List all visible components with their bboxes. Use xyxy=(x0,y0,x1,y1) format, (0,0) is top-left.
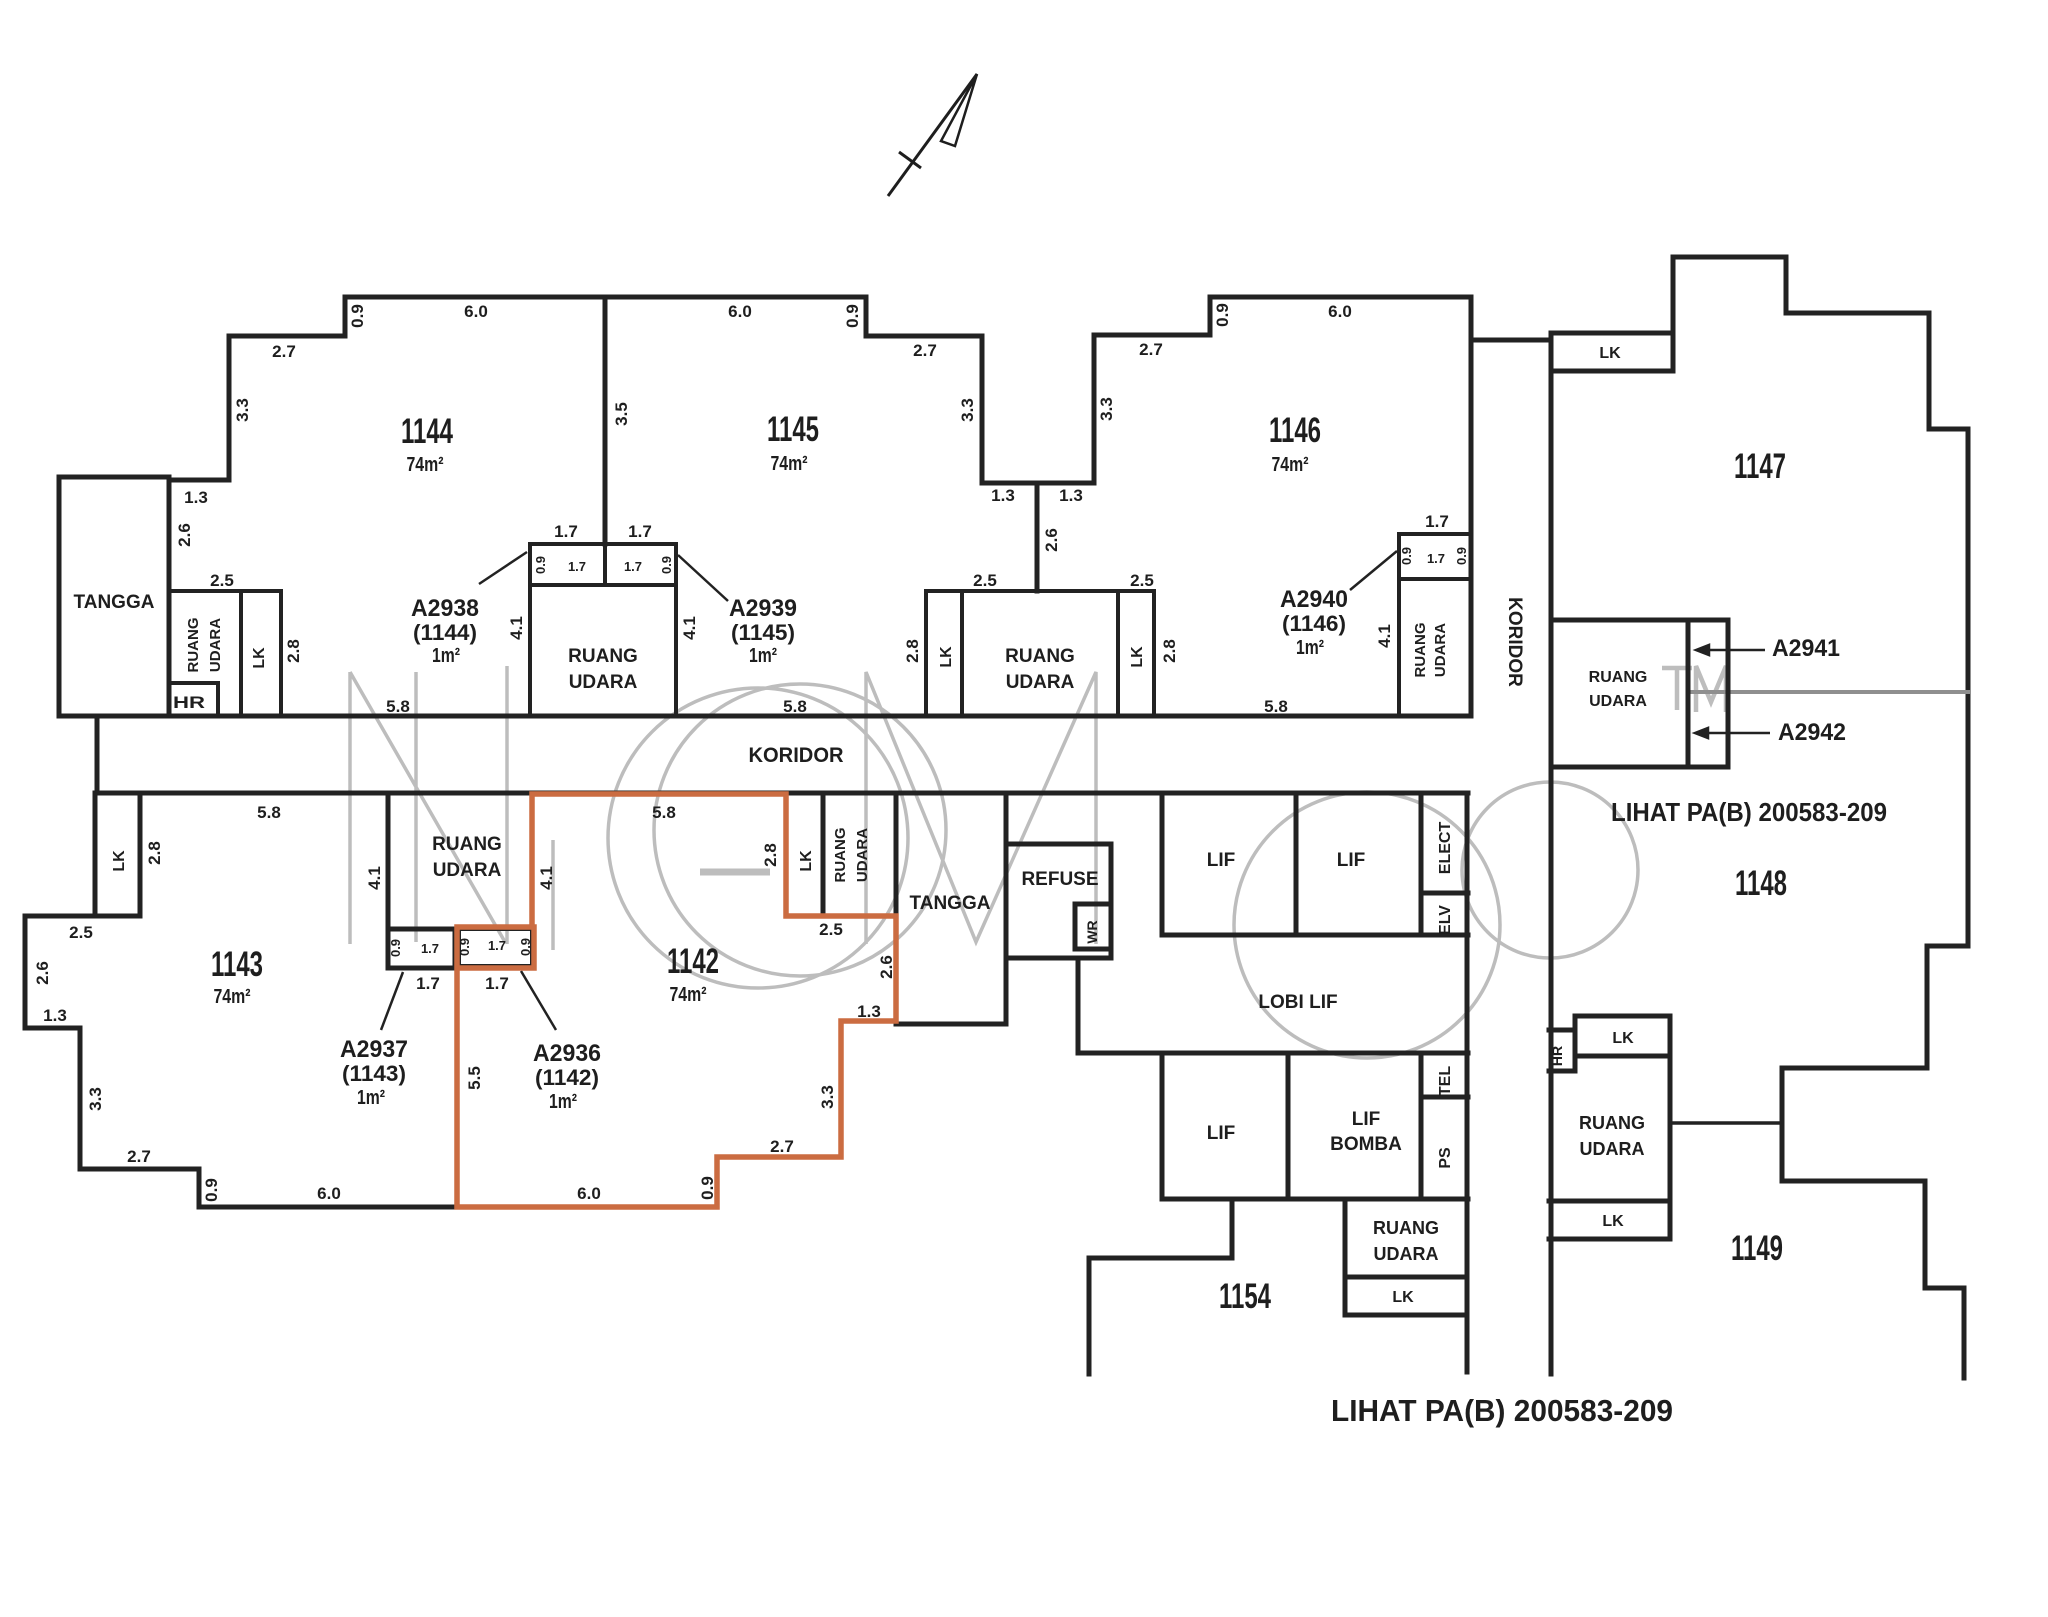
svg-text:74m²: 74m² xyxy=(1272,454,1309,476)
svg-text:LK: LK xyxy=(1612,1030,1634,1047)
svg-text:LIHAT PA(B) 200583-209: LIHAT PA(B) 200583-209 xyxy=(1331,1393,1673,1428)
svg-text:6.0: 6.0 xyxy=(728,302,752,321)
svg-text:3.3: 3.3 xyxy=(233,398,252,422)
svg-text:5.8: 5.8 xyxy=(386,697,410,716)
svg-text:RUANG: RUANG xyxy=(832,828,849,883)
svg-text:2.5: 2.5 xyxy=(973,571,997,590)
svg-text:0.9: 0.9 xyxy=(518,938,533,956)
svg-text:LK: LK xyxy=(1602,1213,1624,1230)
svg-text:TEL: TEL xyxy=(1437,1066,1454,1096)
svg-text:(1143): (1143) xyxy=(342,1061,406,1086)
svg-text:1.3: 1.3 xyxy=(857,1002,881,1021)
svg-text:UDARA: UDARA xyxy=(569,672,638,693)
svg-text:1144: 1144 xyxy=(401,412,453,451)
svg-text:5.5: 5.5 xyxy=(465,1066,484,1090)
svg-text:LOBI LIF: LOBI LIF xyxy=(1258,992,1337,1013)
svg-text:0.9: 0.9 xyxy=(659,556,674,574)
svg-text:UDARA: UDARA xyxy=(1580,1139,1645,1159)
svg-text:2.6: 2.6 xyxy=(1042,528,1061,552)
svg-text:4.1: 4.1 xyxy=(1375,624,1394,648)
svg-text:HR: HR xyxy=(1549,1046,1565,1066)
svg-text:1.7: 1.7 xyxy=(416,974,440,993)
svg-text:1.7: 1.7 xyxy=(554,522,578,541)
svg-text:LK: LK xyxy=(938,646,955,668)
svg-text:(1146): (1146) xyxy=(1282,611,1346,636)
svg-text:UDARA: UDARA xyxy=(1589,693,1647,710)
svg-text:5.8: 5.8 xyxy=(652,803,676,822)
svg-text:A2938: A2938 xyxy=(411,595,479,622)
svg-text:1.7: 1.7 xyxy=(488,938,506,953)
svg-text:1m²: 1m² xyxy=(1296,637,1324,659)
svg-text:6.0: 6.0 xyxy=(464,302,488,321)
svg-text:0.9: 0.9 xyxy=(698,1176,717,1200)
svg-text:RUANG: RUANG xyxy=(1589,669,1648,686)
svg-text:3.5: 3.5 xyxy=(612,402,631,426)
svg-text:1m²: 1m² xyxy=(357,1087,385,1109)
svg-text:1.3: 1.3 xyxy=(184,488,208,507)
svg-text:1147: 1147 xyxy=(1734,447,1786,486)
svg-text:5.8: 5.8 xyxy=(257,803,281,822)
svg-text:A2941: A2941 xyxy=(1772,635,1840,662)
svg-text:74m²: 74m² xyxy=(670,984,707,1006)
svg-text:A2940: A2940 xyxy=(1280,586,1348,613)
svg-text:2.7: 2.7 xyxy=(1139,340,1163,359)
svg-text:(1142): (1142) xyxy=(535,1065,599,1090)
svg-text:1m²: 1m² xyxy=(432,645,460,667)
svg-text:LK: LK xyxy=(1599,345,1621,362)
svg-text:0.9: 0.9 xyxy=(202,1178,221,1202)
svg-text:3.3: 3.3 xyxy=(818,1085,837,1109)
svg-text:LK: LK xyxy=(1129,646,1146,668)
svg-text:1148: 1148 xyxy=(1735,864,1787,903)
svg-text:0.9: 0.9 xyxy=(457,938,472,956)
svg-text:3.3: 3.3 xyxy=(958,398,977,422)
svg-text:4.1: 4.1 xyxy=(537,866,556,890)
svg-text:UDARA: UDARA xyxy=(433,860,502,881)
svg-text:5.8: 5.8 xyxy=(783,697,807,716)
svg-text:2.5: 2.5 xyxy=(819,920,843,939)
svg-text:1149: 1149 xyxy=(1731,1229,1783,1268)
svg-text:RUANG: RUANG xyxy=(185,618,202,673)
svg-text:(1145): (1145) xyxy=(731,620,795,645)
svg-text:A2936: A2936 xyxy=(533,1040,601,1067)
svg-text:1143: 1143 xyxy=(211,945,263,984)
svg-text:BOMBA: BOMBA xyxy=(1330,1134,1402,1155)
svg-text:RUANG: RUANG xyxy=(568,646,638,667)
svg-text:1.7: 1.7 xyxy=(628,522,652,541)
svg-text:1.7: 1.7 xyxy=(1425,512,1449,531)
svg-text:1.3: 1.3 xyxy=(991,486,1015,505)
svg-text:1m²: 1m² xyxy=(749,645,777,667)
svg-text:LIF: LIF xyxy=(1207,850,1236,871)
svg-text:2.8: 2.8 xyxy=(903,639,922,663)
svg-text:4.1: 4.1 xyxy=(365,866,384,890)
svg-text:UDARA: UDARA xyxy=(854,828,871,882)
svg-text:74m²: 74m² xyxy=(771,453,808,475)
svg-text:A2942: A2942 xyxy=(1778,719,1846,746)
svg-text:1m²: 1m² xyxy=(549,1091,577,1113)
svg-text:0.9: 0.9 xyxy=(1399,547,1414,565)
svg-text:1.3: 1.3 xyxy=(1059,486,1083,505)
svg-text:RUANG: RUANG xyxy=(1373,1218,1439,1238)
svg-text:4.1: 4.1 xyxy=(680,616,699,640)
svg-text:1142: 1142 xyxy=(667,942,719,981)
svg-text:UDARA: UDARA xyxy=(1006,672,1075,693)
svg-text:6.0: 6.0 xyxy=(317,1184,341,1203)
svg-text:LK: LK xyxy=(111,850,128,872)
svg-text:TANGGA: TANGGA xyxy=(910,893,991,914)
svg-text:TANGGA: TANGGA xyxy=(74,592,155,613)
svg-text:2.8: 2.8 xyxy=(1160,639,1179,663)
svg-text:REFUSE: REFUSE xyxy=(1021,869,1098,890)
svg-text:LK: LK xyxy=(798,850,815,872)
svg-text:2.5: 2.5 xyxy=(210,571,234,590)
svg-text:KORIDOR: KORIDOR xyxy=(1504,597,1525,687)
svg-text:RUANG: RUANG xyxy=(1005,646,1075,667)
svg-text:5.8: 5.8 xyxy=(1264,697,1288,716)
svg-text:LIF: LIF xyxy=(1352,1109,1381,1130)
svg-text:0.9: 0.9 xyxy=(388,939,403,957)
svg-text:RUANG: RUANG xyxy=(1412,623,1429,678)
svg-text:LIHAT PA(B) 200583-209: LIHAT PA(B) 200583-209 xyxy=(1611,797,1887,827)
svg-text:1.7: 1.7 xyxy=(485,974,509,993)
svg-text:2.5: 2.5 xyxy=(1130,571,1154,590)
svg-text:1.7: 1.7 xyxy=(421,941,439,956)
svg-text:1.7: 1.7 xyxy=(1427,551,1445,566)
svg-text:0.9: 0.9 xyxy=(533,556,548,574)
svg-text:LK: LK xyxy=(1392,1289,1414,1306)
svg-text:UDARA: UDARA xyxy=(1374,1244,1439,1264)
svg-text:(1144): (1144) xyxy=(413,620,477,645)
svg-text:UDARA: UDARA xyxy=(1432,623,1449,677)
svg-text:3.3: 3.3 xyxy=(1097,397,1116,421)
svg-text:UDARA: UDARA xyxy=(207,618,224,672)
svg-text:HR: HR xyxy=(173,693,205,712)
svg-text:ELECT: ELECT xyxy=(1437,822,1454,875)
svg-text:1.7: 1.7 xyxy=(568,559,586,574)
svg-text:2.7: 2.7 xyxy=(913,341,937,360)
svg-text:2.8: 2.8 xyxy=(145,841,164,865)
svg-text:4.1: 4.1 xyxy=(507,616,526,640)
svg-text:1.7: 1.7 xyxy=(624,559,642,574)
svg-text:1146: 1146 xyxy=(1269,411,1321,450)
svg-text:1.3: 1.3 xyxy=(43,1006,67,1025)
svg-text:74m²: 74m² xyxy=(407,454,444,476)
svg-text:0.9: 0.9 xyxy=(843,304,862,328)
svg-text:0.9: 0.9 xyxy=(1454,547,1469,565)
svg-text:RUANG: RUANG xyxy=(432,834,502,855)
svg-text:2.6: 2.6 xyxy=(33,961,52,985)
svg-text:2.8: 2.8 xyxy=(284,639,303,663)
svg-text:2.6: 2.6 xyxy=(877,955,896,979)
svg-text:PS: PS xyxy=(1437,1147,1454,1169)
svg-text:2.5: 2.5 xyxy=(69,923,93,942)
svg-text:A2939: A2939 xyxy=(729,595,797,622)
svg-text:LK: LK xyxy=(251,647,268,669)
svg-text:3.3: 3.3 xyxy=(86,1087,105,1111)
svg-text:0.9: 0.9 xyxy=(348,304,367,328)
svg-text:0.9: 0.9 xyxy=(1213,303,1232,327)
svg-text:2.6: 2.6 xyxy=(175,523,194,547)
svg-text:KORIDOR: KORIDOR xyxy=(749,744,844,767)
svg-text:2.7: 2.7 xyxy=(770,1137,794,1156)
svg-text:RUANG: RUANG xyxy=(1579,1113,1645,1133)
svg-text:LIF: LIF xyxy=(1207,1123,1236,1144)
svg-text:2.8: 2.8 xyxy=(761,843,780,867)
svg-text:2.7: 2.7 xyxy=(127,1147,151,1166)
svg-text:1145: 1145 xyxy=(767,410,819,449)
svg-text:ELV: ELV xyxy=(1437,905,1454,935)
svg-text:6.0: 6.0 xyxy=(577,1184,601,1203)
svg-text:2.7: 2.7 xyxy=(272,342,296,361)
svg-text:A2937: A2937 xyxy=(340,1036,408,1063)
svg-text:74m²: 74m² xyxy=(214,986,251,1008)
svg-text:6.0: 6.0 xyxy=(1328,302,1352,321)
svg-text:1154: 1154 xyxy=(1219,1277,1271,1316)
svg-text:WR: WR xyxy=(1084,920,1100,943)
svg-text:LIF: LIF xyxy=(1337,850,1366,871)
